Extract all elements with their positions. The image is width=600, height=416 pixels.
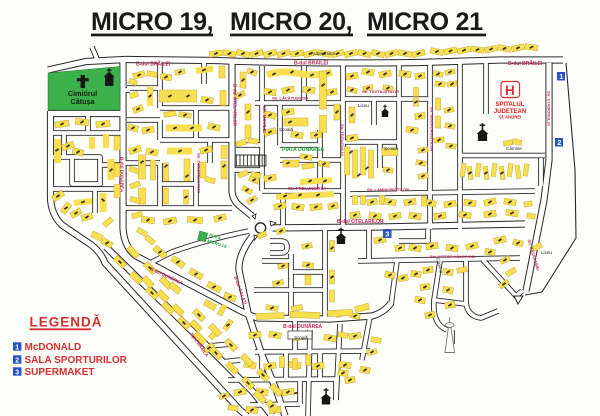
svg-text:MICRO 20,: MICRO 20, [230,8,352,36]
svg-text:Str. LĂCĂTUȘILOR: Str. LĂCĂTUȘILOR [272,96,308,101]
svg-text:Școală: Școală [279,127,293,132]
svg-text:Str. TECUCIULUI: Str. TECUCIULUI [340,124,345,156]
svg-text:LEGENDĂ: LEGENDĂ [30,315,103,330]
svg-text:Str. LAMINORIȘTILOR: Str. LAMINORIȘTILOR [367,187,409,192]
svg-text:B-dul BRĂILEI: B-dul BRĂILEI [294,60,329,67]
svg-text:1: 1 [15,344,19,351]
svg-text:1: 1 [559,72,563,81]
svg-text:SALA SPORTURILOR: SALA SPORTURILOR [25,355,128,366]
svg-text:B-dul DUNĂREA: B-dul DUNĂREA [120,157,126,193]
svg-text:H: H [505,83,515,98]
svg-text:Liceu: Liceu [541,250,552,255]
svg-text:2: 2 [557,138,561,147]
svg-text:Str. CONSTRUCTORI: Str. CONSTRUCTORI [197,153,202,193]
svg-text:2: 2 [15,357,19,364]
svg-text:Str. MOVILEI: Str. MOVILEI [262,106,267,133]
svg-text:Str. TEXTILIȘTILOR: Str. TEXTILIȘTILOR [362,89,399,94]
svg-text:Autoservice: Autoservice [311,51,335,56]
svg-text:SPITALUL: SPITALUL [496,102,525,108]
svg-text:PIATA DUNAREA: PIATA DUNAREA [282,147,324,153]
svg-text:SUPERMAKET: SUPERMAKET [25,367,95,378]
svg-text:B-dul OTELARILOR: B-dul OTELARILOR [337,219,384,225]
svg-text:B-dul BRĂILEI: B-dul BRĂILEI [508,60,543,67]
svg-text:Cătușa: Cătușa [71,97,96,106]
svg-text:3: 3 [385,230,389,239]
svg-text:Școală: Școală [294,335,308,340]
svg-text:MICRO 21: MICRO 21 [367,8,483,36]
svg-text:Cămine: Cămine [506,146,522,151]
svg-text:B-dul BRĂILEI: B-dul BRĂILEI [136,61,171,68]
svg-text:Str. SIDERURGIȘTILOR: Str. SIDERURGIȘTILOR [430,107,435,152]
svg-text:3: 3 [15,369,19,376]
svg-text:B-dul OTELARILOR: B-dul OTELARILOR [233,84,238,127]
svg-text:Str. STADIONULUI: Str. STADIONULUI [547,91,552,126]
svg-text:Școală: Școală [384,146,398,151]
svg-text:Liceu: Liceu [358,103,369,108]
svg-text:MICRO 19,: MICRO 19, [91,8,213,36]
svg-text:Str. PRELUNGIREA: Str. PRELUNGIREA [288,186,326,191]
svg-text:McDONALD: McDONALD [25,342,82,353]
svg-text:Sf. ANDREI: Sf. ANDREI [499,115,521,120]
svg-text:B-dul DUNĂREA: B-dul DUNĂREA [283,323,323,330]
